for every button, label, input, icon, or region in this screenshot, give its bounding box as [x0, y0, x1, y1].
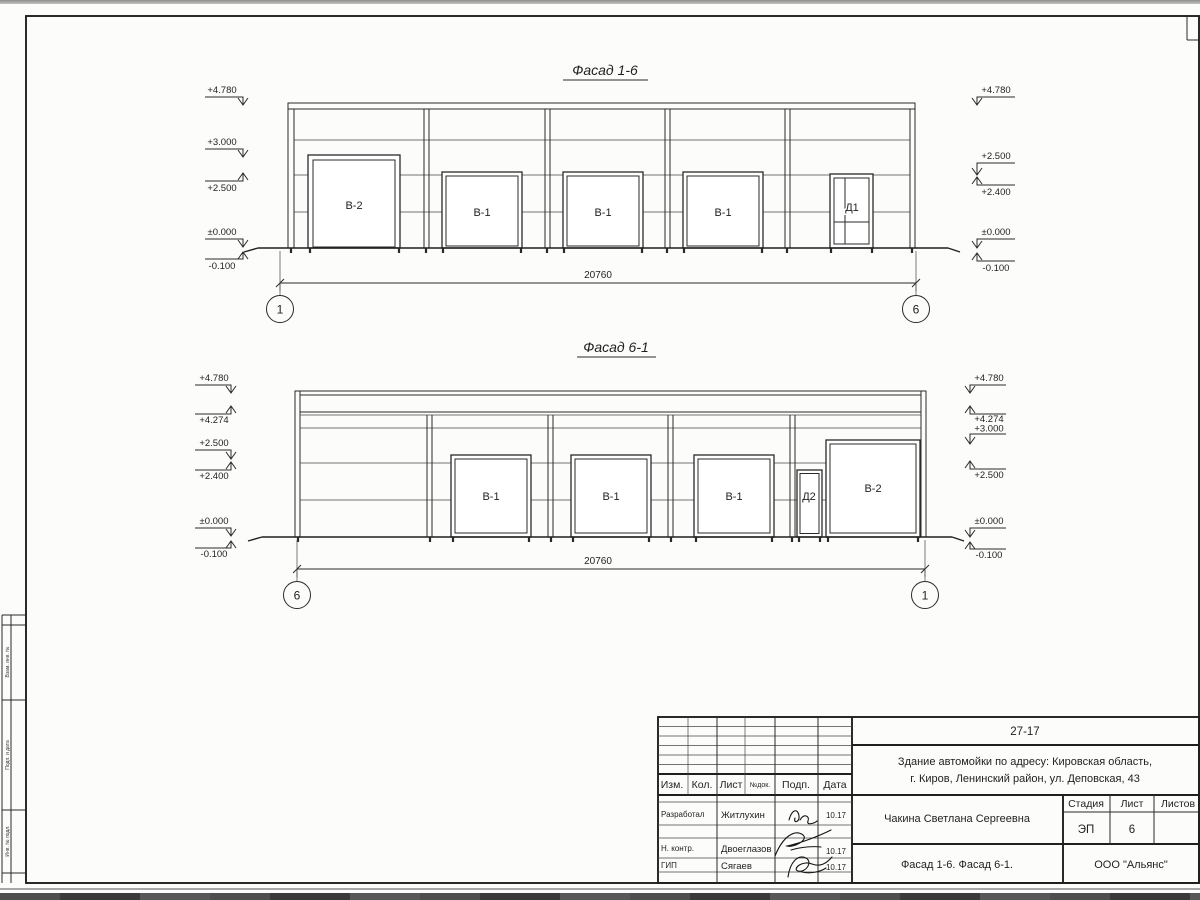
- axis-number: 6: [294, 589, 301, 603]
- axis-number: 6: [913, 303, 920, 317]
- side-stamp-label: Взам. инв. №: [5, 647, 11, 678]
- door-v1-2: В-1: [571, 455, 651, 537]
- signature-2: [775, 830, 831, 856]
- row-role: ГИП: [661, 861, 677, 870]
- door-label: В-2: [345, 200, 362, 212]
- foundation-ticks: [291, 249, 912, 254]
- col-ndok: №док.: [750, 782, 771, 789]
- elevation-mark: -0.100: [209, 261, 236, 272]
- elevation-marks-left: +4.780 +4.274 +2.500 +2.400 ±0.000 -0.10…: [195, 373, 236, 560]
- facade-6-1-view: Фасад 6-1 В-1 В-1 В-1: [195, 339, 1006, 609]
- sheet-label: Лист: [1121, 798, 1144, 810]
- axis-number: 1: [922, 589, 929, 603]
- door-label: В-2: [864, 483, 881, 495]
- project-code: 27-17: [1010, 726, 1039, 738]
- title-block: Изм. Кол. Лист №док. Подп. Дата Разработ…: [658, 717, 1199, 883]
- door-d1: Д1: [830, 174, 873, 248]
- axis-bubble-6: 6: [903, 283, 930, 323]
- stage-value: ЭП: [1078, 824, 1095, 836]
- foundation-ticks: [298, 538, 918, 543]
- row-date: 10.17: [826, 863, 847, 872]
- facade-title: Фасад 1-6: [572, 62, 638, 78]
- elevation-mark: +2.500: [981, 151, 1010, 162]
- door-label: В-1: [714, 207, 731, 219]
- door-v2: В-2: [826, 440, 920, 537]
- elevation-mark: ±0.000: [200, 516, 229, 527]
- dimension-value: 20760: [584, 556, 612, 567]
- elevation-mark: +2.500: [199, 438, 228, 449]
- facade-1-6-view: Фасад 1-6 В-2 В-1 В-1: [205, 62, 1015, 323]
- col-podp: Подп.: [782, 779, 810, 791]
- parapet-band-lines: [300, 395, 921, 412]
- dimension-20760: 20760: [276, 251, 920, 291]
- author-name: Чакина Светлана Сергеевна: [884, 813, 1031, 825]
- facade-title: Фасад 6-1: [583, 339, 649, 355]
- axis-bubble-6: 6: [284, 569, 311, 609]
- row-date: 10.17: [826, 811, 847, 820]
- door-label: В-1: [473, 207, 490, 219]
- door-v1-3: В-1: [683, 172, 763, 248]
- side-stamp-label: Инв. № подл.: [5, 825, 11, 856]
- elevation-mark: -0.100: [976, 550, 1003, 561]
- elevation-mark: +2.500: [207, 183, 236, 194]
- door-v1-1: В-1: [451, 455, 531, 537]
- elevation-mark: +4.780: [207, 85, 236, 96]
- ground-line: [248, 537, 964, 541]
- drawing-sheet: Фасад 1-6 В-2 В-1 В-1: [0, 0, 1200, 900]
- door-label: В-1: [602, 491, 619, 503]
- row-date: 10.17: [826, 847, 847, 856]
- technical-drawing: Фасад 1-6 В-2 В-1 В-1: [0, 0, 1200, 900]
- col-kol: Кол.: [692, 779, 713, 791]
- project-address-line1: Здание автомойки по адресу: Кировская об…: [898, 756, 1152, 768]
- dimension-20760: 20760: [293, 540, 929, 577]
- door-v1-1: В-1: [442, 172, 522, 248]
- side-stamp: Взам. инв. № Подп. и дата Инв. № подл.: [2, 615, 26, 883]
- row-name: Сягаев: [721, 861, 752, 872]
- corner-stamp-box: [1187, 16, 1199, 40]
- scan-edge-bottom: [0, 893, 1200, 900]
- dimension-value: 20760: [584, 270, 612, 281]
- row-role: Н. контр.: [661, 844, 694, 853]
- axis-bubble-1: 1: [912, 569, 939, 609]
- axis-number: 1: [277, 303, 284, 317]
- elevation-marks-left: +4.780 +3.000 +2.500 ±0.000 -0.100: [205, 85, 248, 272]
- sheets-label: Листов: [1161, 798, 1196, 810]
- sheet-title: Фасад 1-6. Фасад 6-1.: [901, 859, 1013, 871]
- elevation-mark: +4.780: [981, 85, 1010, 96]
- col-data: Дата: [823, 779, 846, 791]
- col-izm: Изм.: [661, 779, 684, 791]
- elevation-mark: ±0.000: [982, 227, 1011, 238]
- door-v2: В-2: [308, 155, 400, 248]
- door-label: В-1: [594, 207, 611, 219]
- door-label: Д2: [802, 491, 816, 503]
- project-address-line2: г. Киров, Ленинский район, ул. Деповская…: [910, 773, 1140, 785]
- door-label: В-1: [482, 491, 499, 503]
- elevation-mark: +4.780: [974, 373, 1003, 384]
- elevation-mark: +4.780: [199, 373, 228, 384]
- elevation-marks-right: +4.780 +4.274 +3.000 +2.500 ±0.000 -0.10…: [965, 373, 1006, 561]
- elevation-mark: +2.500: [974, 470, 1003, 481]
- axis-bubble-1: 1: [267, 283, 294, 323]
- elevation-mark: +3.000: [974, 424, 1003, 435]
- elevation-mark: +2.400: [199, 471, 228, 482]
- door-label: В-1: [725, 491, 742, 503]
- row-name: Житлухин: [721, 810, 765, 821]
- elevation-mark: -0.100: [983, 263, 1010, 274]
- elevation-mark: +3.000: [207, 137, 236, 148]
- ground-line: [244, 248, 960, 252]
- paper-bottom-edge: [0, 888, 1200, 890]
- sheet-number: 6: [1129, 824, 1135, 836]
- door-d2: Д2: [797, 470, 822, 537]
- door-v1-2: В-1: [563, 172, 643, 248]
- stage-label: Стадия: [1068, 798, 1104, 810]
- side-stamp-label: Подп. и дата: [5, 740, 11, 770]
- signature-1: [789, 811, 817, 824]
- elevation-mark: -0.100: [201, 549, 228, 560]
- col-list: Лист: [720, 779, 743, 791]
- elevation-mark: ±0.000: [975, 516, 1004, 527]
- company-name: ООО "Альянс": [1094, 859, 1168, 871]
- elevation-mark: ±0.000: [208, 227, 237, 238]
- row-role: Разработал: [661, 810, 705, 819]
- row-name: Двоеглазов: [721, 844, 772, 855]
- door-v1-3: В-1: [694, 455, 774, 537]
- elevation-mark: +2.400: [981, 187, 1010, 198]
- elevation-mark: +4.274: [199, 415, 228, 426]
- door-label: Д1: [845, 202, 859, 214]
- elevation-marks-right: +4.780 +2.500 +2.400 ±0.000 -0.100: [972, 85, 1015, 274]
